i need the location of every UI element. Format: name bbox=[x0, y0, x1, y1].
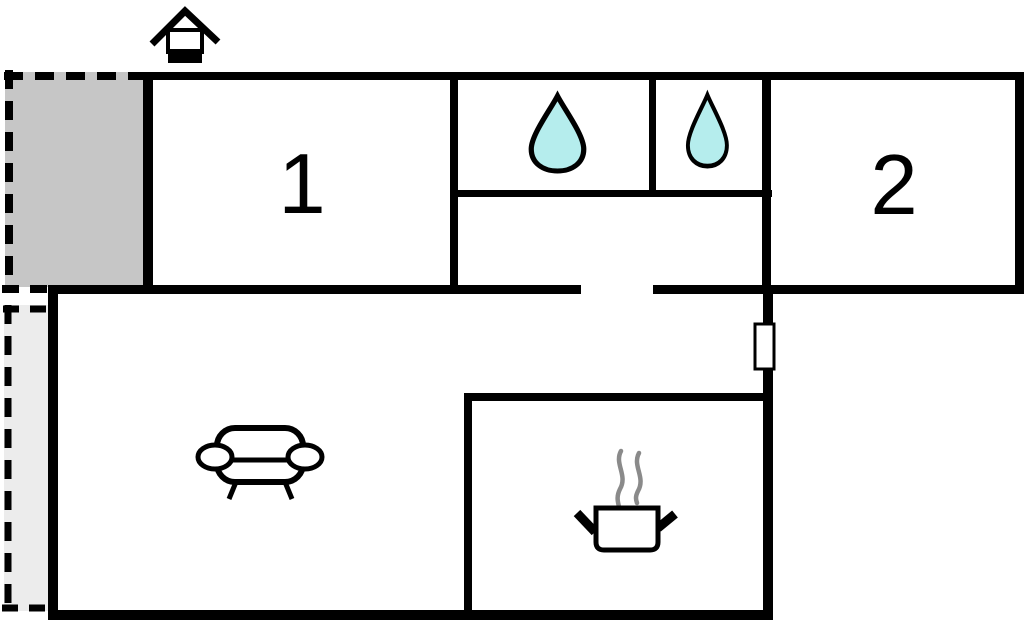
wall-bedroom1-left bbox=[143, 72, 153, 294]
sofa-armrest-right bbox=[288, 445, 322, 469]
entrance-body bbox=[168, 30, 202, 52]
terrace-fill bbox=[5, 72, 143, 287]
room-hallway bbox=[458, 197, 762, 285]
entrance-icon bbox=[152, 11, 218, 63]
window-door-symbol bbox=[755, 324, 774, 369]
wall-lower-left bbox=[48, 285, 58, 620]
entrance-body-base bbox=[168, 49, 202, 63]
pot-body bbox=[596, 508, 658, 550]
wall-kitchen-left bbox=[464, 393, 472, 610]
wall-mid-right-of-door-opening bbox=[653, 285, 1024, 294]
wall-kitchen-top bbox=[464, 393, 769, 401]
wall-bottom bbox=[48, 610, 773, 620]
sofa-armrest-left bbox=[198, 445, 232, 469]
floor-plan: 1 2 bbox=[0, 0, 1024, 620]
wall-top bbox=[143, 72, 1024, 80]
room-2-label: 2 bbox=[870, 138, 917, 233]
terrace-area bbox=[2, 70, 143, 292]
wall-bedroom1-bathrooms bbox=[450, 72, 458, 294]
wall-bathrooms-bottom bbox=[450, 190, 772, 197]
wall-bathroom-divider bbox=[649, 72, 656, 197]
floor-plan-canvas: 1 2 bbox=[0, 0, 1024, 620]
room-1-label: 1 bbox=[278, 137, 325, 232]
patio-area bbox=[2, 305, 48, 613]
wall-upper-right bbox=[1015, 72, 1024, 294]
wall-mid-left-of-door-opening bbox=[48, 285, 581, 294]
wall-hall-bedroom2 bbox=[762, 72, 771, 294]
